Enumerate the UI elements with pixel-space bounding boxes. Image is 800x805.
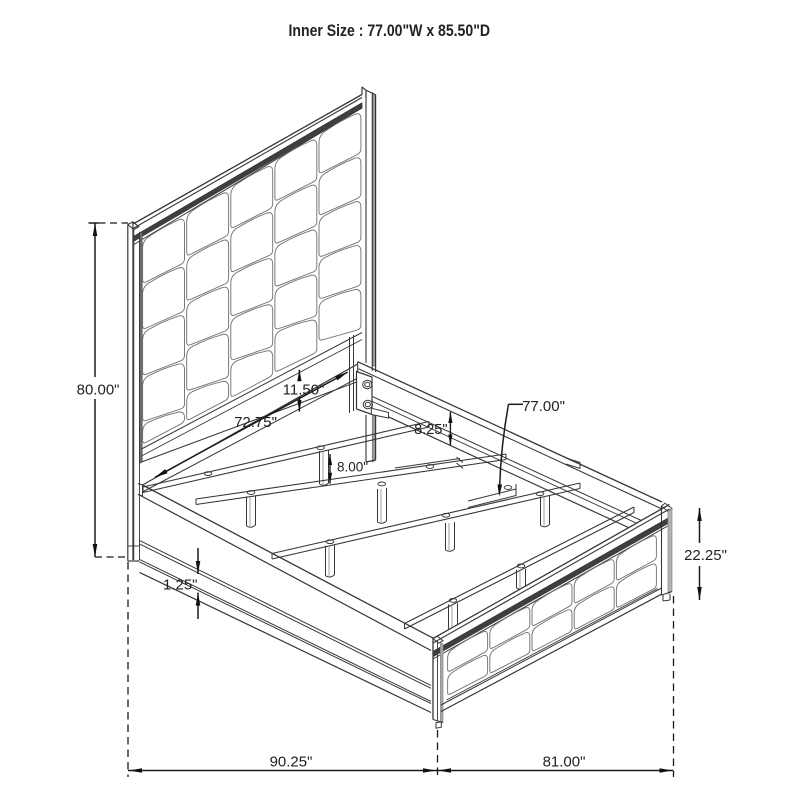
svg-text:90.25": 90.25"	[270, 754, 313, 771]
svg-text:Inner Size : 77.00"W x 85.50"D: Inner Size : 77.00"W x 85.50"D	[289, 22, 491, 40]
svg-text:72.75": 72.75"	[234, 414, 277, 431]
svg-text:77.00": 77.00"	[522, 398, 565, 415]
svg-text:81.00": 81.00"	[543, 754, 586, 771]
svg-text:1.25": 1.25"	[163, 577, 198, 594]
svg-text:8.25": 8.25"	[414, 422, 447, 438]
svg-text:22.25": 22.25"	[684, 547, 727, 564]
svg-text:80.00": 80.00"	[77, 381, 120, 398]
svg-text:8.00": 8.00"	[337, 460, 368, 475]
